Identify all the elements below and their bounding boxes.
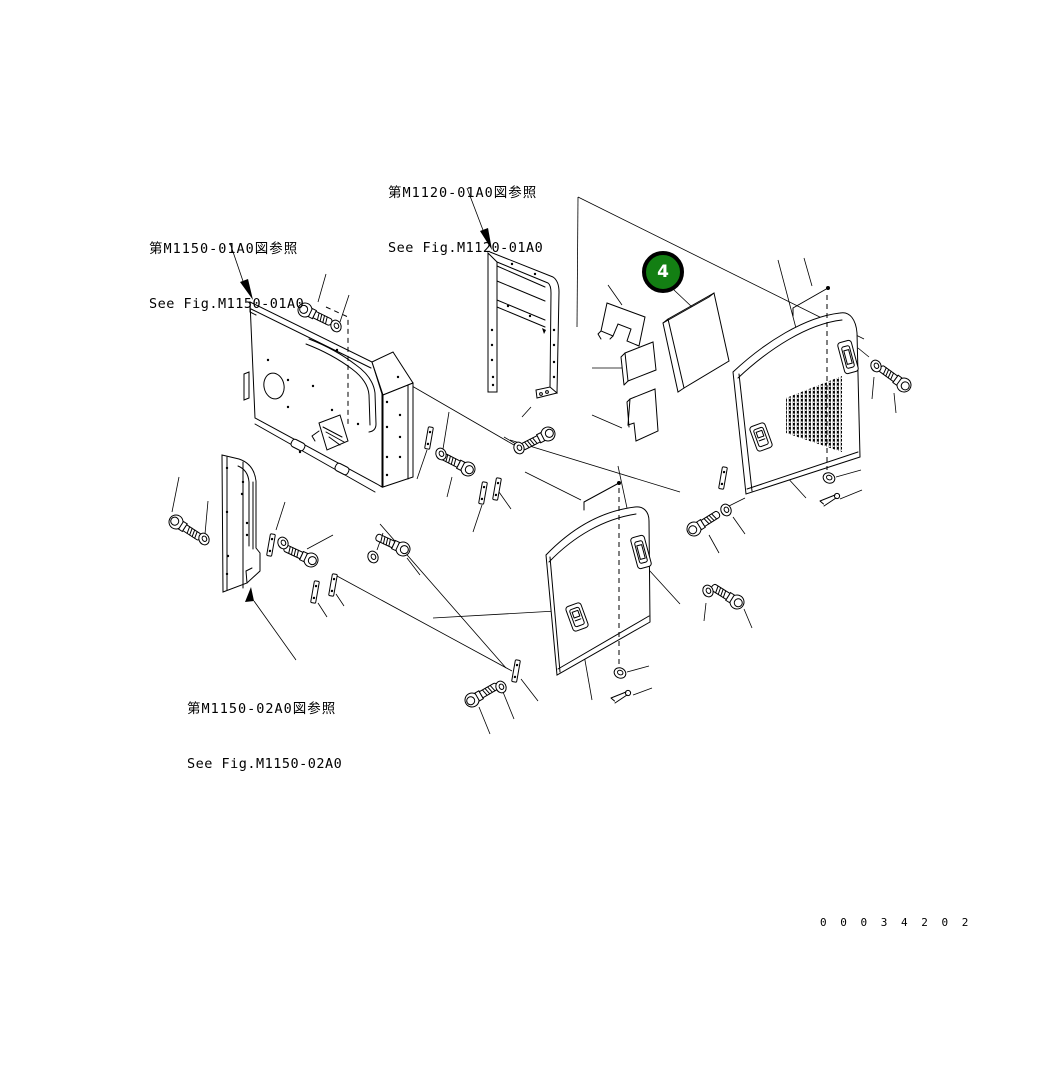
part-callout-number: 4 bbox=[657, 262, 669, 282]
right-door bbox=[733, 313, 860, 494]
fig-reference-m1150-01a0: 第M1150-01A0図参照 See Fig.M1150-01A0 bbox=[149, 203, 304, 332]
fig-reference-en: See Fig.M1150-01A0 bbox=[149, 296, 304, 313]
fig-reference-m1120-01a0: 第M1120-01A0図参照 See Fig.M1120-01A0 bbox=[388, 147, 543, 276]
bracket bbox=[493, 478, 502, 501]
fig-reference-m1150-02a0: 第M1150-02A0図参照 See Fig.M1150-02A0 bbox=[187, 663, 342, 792]
cotter-pin bbox=[611, 690, 631, 703]
bracket bbox=[267, 534, 276, 557]
hinge-rod-bottom bbox=[584, 481, 621, 510]
sponge-pad-l-shape bbox=[627, 389, 658, 441]
bracket bbox=[512, 660, 521, 683]
fig-reference-jp: 第M1150-01A0図参照 bbox=[149, 241, 304, 258]
washer bbox=[821, 471, 836, 485]
drawing-number: 0 0 0 3 4 2 0 2 bbox=[820, 916, 972, 929]
hinge-rod-right bbox=[793, 286, 830, 316]
parts-diagram-page: 第M1120-01A0図参照 See Fig.M1120-01A0 第M1150… bbox=[0, 0, 1062, 1082]
part-callout-4[interactable]: 4 bbox=[642, 251, 684, 293]
bolt-holes bbox=[491, 263, 555, 386]
sponge-pad-rect bbox=[621, 342, 656, 385]
fig-reference-en: See Fig.M1150-02A0 bbox=[187, 756, 342, 773]
fig-reference-en: See Fig.M1120-01A0 bbox=[388, 240, 543, 257]
lower-left-panel bbox=[222, 455, 260, 592]
washer bbox=[494, 679, 508, 694]
bolt bbox=[708, 580, 746, 611]
bracket bbox=[479, 482, 488, 505]
fig-reference-jp: 第M1150-02A0図参照 bbox=[187, 701, 342, 718]
bottom-door bbox=[546, 507, 652, 675]
cotter-pin bbox=[820, 493, 840, 506]
bolt bbox=[684, 507, 722, 538]
washer bbox=[366, 549, 380, 564]
bracket bbox=[425, 427, 434, 450]
arrow-to-lower-panel bbox=[245, 587, 254, 602]
bracket bbox=[719, 467, 728, 490]
bracket bbox=[329, 574, 338, 597]
bracket bbox=[311, 581, 320, 604]
washer bbox=[612, 666, 627, 680]
fig-reference-jp: 第M1120-01A0図参照 bbox=[388, 185, 543, 202]
sponge-pad-square-item4 bbox=[663, 293, 729, 392]
sponge-pad-notched bbox=[598, 303, 645, 346]
bolt bbox=[462, 679, 501, 709]
